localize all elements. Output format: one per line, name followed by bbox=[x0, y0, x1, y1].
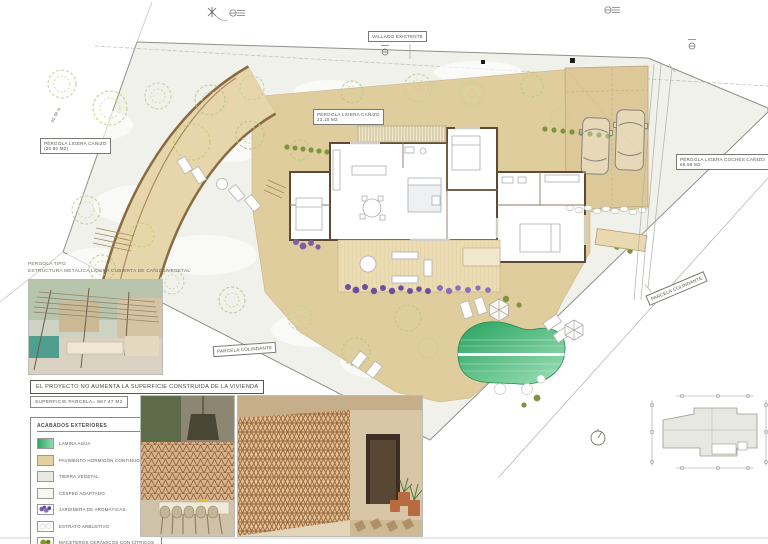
benchmark-icon bbox=[605, 7, 620, 13]
pergola-note: PÉRGOLA TIPO ESTRUCTURA METÁLICA LIGERA … bbox=[28, 261, 190, 275]
swatch-cesped bbox=[37, 488, 54, 499]
legend-title: ACABADOS EXTERIORES bbox=[37, 423, 155, 432]
photo-celosia-art bbox=[238, 396, 422, 536]
photo-celosia-corridor bbox=[237, 395, 423, 537]
superficie-parcela: SUPERFICIE PARCELA= 867.47 M2 bbox=[30, 396, 128, 408]
photo-dining-lattice bbox=[140, 395, 235, 537]
car-2 bbox=[612, 109, 648, 170]
swatch-pavimento bbox=[37, 455, 54, 466]
label-pergola-parking: PÉRGOLA LIGERA COCHES CAÑIZO 66.56 M2 bbox=[676, 154, 768, 170]
compass-icon bbox=[591, 429, 605, 445]
swatch-maceteros bbox=[37, 537, 54, 544]
photo-pergola bbox=[28, 279, 163, 375]
legend-item-cesped: CÉSPED ADAPTADO bbox=[37, 488, 155, 499]
photo-pergola-art bbox=[29, 280, 162, 374]
label-vallado-existente: VALLADO EXISTENTE bbox=[368, 31, 427, 42]
label-pergola-house: PÉRGOLA LIGERA CAÑIZO 23.10 M2 bbox=[313, 109, 384, 125]
swatch-tierra bbox=[37, 471, 54, 482]
legend-item-pavimento: PAVIMENTO HORMIGÓN CONTINUO bbox=[37, 455, 155, 466]
project-statement: EL PROYECTO NO AUMENTA LA SUPERFICIE CON… bbox=[30, 380, 264, 394]
benchmark-icon bbox=[688, 39, 696, 49]
legend-item-lamina-agua: LÁMINA AGUA bbox=[37, 438, 155, 449]
swatch-arbustivo bbox=[37, 521, 54, 532]
legend-item-jardinera: JARDINERA DE AROMÁTICAS bbox=[37, 504, 155, 515]
key-plan bbox=[650, 394, 767, 469]
swatch-lamina-agua bbox=[37, 438, 54, 449]
label-text: VALLADO EXISTENTE bbox=[372, 34, 423, 39]
pergola-note-line2: ESTRUCTURA METÁLICA LIGERA CUBIERTA DE C… bbox=[28, 268, 190, 275]
photo-dining-art bbox=[141, 396, 234, 536]
pergola-note-line1: PÉRGOLA TIPO bbox=[28, 261, 190, 268]
legend-item-maceteros: MACETEROS CERÁMICOS CON CÍTRICOS bbox=[37, 537, 155, 544]
benchmark-icon bbox=[230, 10, 245, 16]
north-icon bbox=[208, 7, 228, 21]
label-pergola-left: PÉRGOLA LIGERA CAÑIZO (20.80 M2) bbox=[40, 138, 111, 154]
drawing-sheet: VALLADO EXISTENTE PÉRGOLA LIGERA CAÑIZO … bbox=[0, 0, 768, 544]
car-1 bbox=[578, 117, 613, 174]
legend-item-tierra: TIERRA VEGETAL bbox=[37, 471, 155, 482]
legend-item-arbustivo: ESTRATO ARBUSTIVO bbox=[37, 521, 155, 532]
swatch-jardinera bbox=[37, 504, 54, 515]
